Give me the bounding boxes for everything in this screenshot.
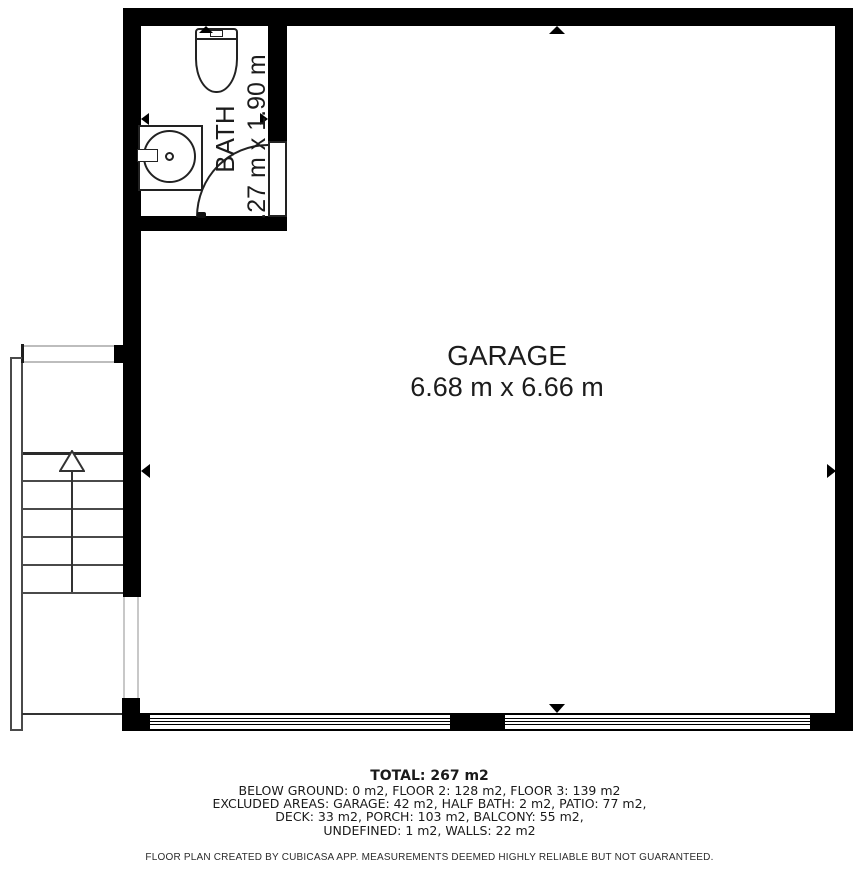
- stairs-boundary-inner-dark: [21, 344, 24, 363]
- stairs-landing-edge-top: [22, 345, 114, 347]
- area-line: DECK: 33 m2, PORCH: 103 m2, BALCONY: 55 …: [0, 810, 859, 823]
- area-summary: TOTAL: 267 m2 BELOW GROUND: 0 m2, FLOOR …: [0, 769, 859, 863]
- sink-faucet: [137, 149, 158, 162]
- sink-drain-dot: [165, 152, 174, 161]
- stairs-landing-edge-bottom: [22, 361, 114, 363]
- stair-tread-line: [23, 508, 123, 510]
- total-area-text: TOTAL: 267 m2: [0, 769, 859, 784]
- wall-marker-left-icon: [141, 464, 150, 478]
- area-line: UNDEFINED: 1 m2, WALLS: 22 m2: [0, 824, 859, 837]
- bath-room-dimensions: .27 m x 1.90 m: [243, 52, 271, 222]
- toilet-tank-divider: [197, 38, 236, 40]
- wall-right: [835, 8, 853, 731]
- wall-top: [123, 8, 853, 26]
- wall-left: [123, 8, 141, 597]
- wall-segment-bottom-right: [810, 713, 836, 731]
- stairs-direction-line: [71, 467, 73, 592]
- disclaimer-text: FLOOR PLAN CREATED BY CUBICASA APP. MEAS…: [0, 852, 859, 863]
- stair-tread-line: [23, 480, 123, 482]
- bath-room-label: BATH: [210, 69, 240, 209]
- wall-opening-outline-left: [123, 597, 125, 698]
- wall-segment-bottom-mid: [450, 713, 505, 731]
- wall-marker-down-icon: [549, 704, 565, 713]
- wall-marker-right-icon: [827, 464, 836, 478]
- stairs-boundary-outer: [10, 357, 12, 731]
- floor-plan: GARAGE 6.68 m x 6.66 m BATH .27 m x 1.90…: [0, 0, 859, 872]
- wall-stub-stairs-top: [114, 345, 123, 363]
- stair-tread-line: [23, 536, 123, 538]
- wall-opening-outline-right: [137, 597, 139, 698]
- bath-marker-left-icon: [141, 113, 149, 125]
- door-arc-end: [197, 212, 206, 218]
- stair-tread-line: [23, 564, 123, 566]
- wall-marker-up-icon: [549, 26, 565, 34]
- up-arrow-icon: [59, 450, 85, 473]
- stairs-bottom-floor-line: [22, 713, 122, 715]
- garage-room-dimensions: 6.68 m x 6.66 m: [357, 372, 657, 403]
- stair-tread-line: [23, 592, 123, 594]
- wall-corner-ext-bottom-left: [140, 713, 150, 731]
- garage-room-label: GARAGE: [357, 340, 657, 372]
- wall-corner-block-bottom-left: [122, 698, 140, 731]
- stairs-boundary-connector: [10, 357, 22, 359]
- stairs-boundary-inner: [21, 344, 23, 731]
- stairs-boundary-cap: [10, 729, 23, 731]
- bath-marker-up-icon: [199, 26, 213, 33]
